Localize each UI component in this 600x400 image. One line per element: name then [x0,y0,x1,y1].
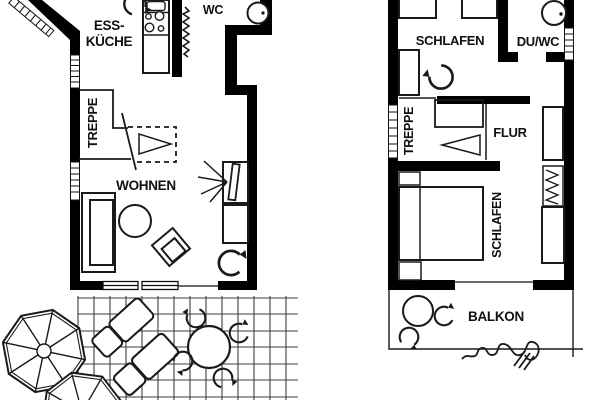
balcony-table [403,296,433,326]
wc-basin-icon [248,3,269,24]
wardrobe [542,207,564,263]
room-label-living: WOHNEN [116,178,176,193]
room-label-balcony: BALKON [468,309,524,324]
coffee-table [119,205,151,237]
nightstand [399,262,421,280]
shelf [223,205,248,243]
shower-basin-icon [542,1,566,25]
room-label-shower-wc: DU/WC [517,34,560,49]
room-label-wc: WC [203,3,223,17]
floor-plan-drawing: ESS- KÜCHE WC TREPPE WOHNEN SCHLAFEN DU/… [0,0,600,400]
floor-plan-page: ESS- KÜCHE WC TREPPE WOHNEN SCHLAFEN DU/… [0,0,600,400]
room-label-hallway: FLUR [493,125,527,140]
room-label-stairs-right: TREPPE [402,107,416,155]
wardrobe [399,50,419,95]
room-label-bedroom-top: SCHLAFEN [416,33,484,48]
nightstand [399,172,420,185]
room-label-stairs-left: TREPPE [85,97,100,148]
room-label-bedroom-bottom: SCHLAFEN [490,192,504,258]
room-label-kitchen-line2: KÜCHE [86,34,133,49]
closet [543,107,563,160]
room-label-kitchen-line1: ESS- [94,18,124,33]
garden-table [188,326,230,368]
sofa [82,193,115,272]
double-bed [399,187,483,260]
